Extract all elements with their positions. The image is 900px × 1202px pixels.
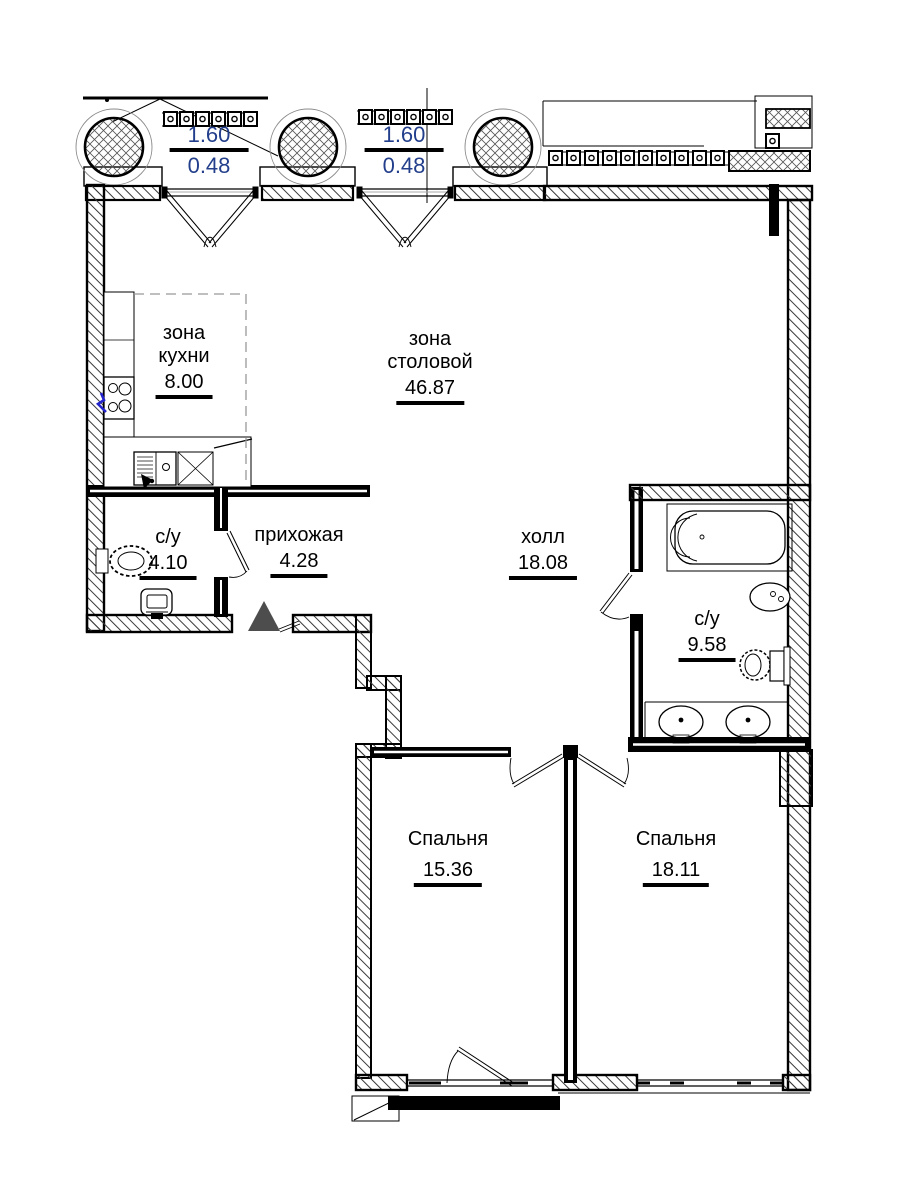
room-area: 4.28 (271, 550, 328, 578)
room-name: Спальня (408, 828, 488, 851)
door-bathroom-left (227, 531, 249, 577)
room-label-bathroom-left: с/у 4.10 (140, 526, 197, 580)
room-name: зона (387, 328, 472, 351)
room-area: 18.11 (643, 859, 710, 887)
double-sink-icon (645, 702, 788, 743)
room-label-kitchen-zone: зона кухни 8.00 (156, 322, 213, 399)
window-sill-value: 0.48 (170, 152, 249, 178)
room-name: прихожая (254, 524, 343, 547)
room-name: столовой (387, 351, 472, 374)
room-label-hallway: прихожая 4.28 (254, 524, 343, 578)
bedroom-1-window (407, 1080, 553, 1086)
window-1-dimensions: 1.60 0.48 (170, 122, 249, 178)
room-name: кухни (156, 345, 213, 368)
toilet-cistern-icon (740, 647, 790, 685)
door-bedroom-1 (510, 754, 564, 787)
floor-plan: 1.60 0.48 1.60 0.48 зона кухни 8.00 зона… (0, 0, 900, 1202)
room-label-bathroom-right: с/у 9.58 (679, 608, 736, 662)
room-label-bedroom-1: Спальня 15.36 (408, 828, 488, 887)
window-1 (162, 187, 258, 247)
room-area: 46.87 (396, 377, 464, 405)
room-area: 4.10 (140, 552, 197, 580)
room-area: 9.58 (679, 634, 736, 662)
room-name: холл (509, 526, 577, 549)
room-name: с/у (140, 526, 197, 549)
window-2 (357, 187, 453, 247)
room-area: 18.08 (509, 552, 577, 580)
room-name: зона (156, 322, 213, 345)
window-2-dimensions: 1.60 0.48 (365, 122, 444, 178)
facade-columns (76, 109, 547, 200)
balcony-parapet (352, 1096, 560, 1121)
room-label-dining-zone: зона столовой 46.87 (387, 328, 472, 405)
stove-icon (98, 377, 134, 419)
room-name: с/у (679, 608, 736, 631)
window-width-value: 1.60 (170, 122, 249, 152)
bathtub-icon (667, 504, 792, 571)
window-width-value: 1.60 (365, 122, 444, 152)
floor-plan-drawing (0, 0, 900, 1202)
column (453, 109, 547, 200)
room-label-hall: холл 18.08 (509, 526, 577, 580)
door-bathroom-right (600, 573, 632, 619)
room-area: 15.36 (414, 859, 482, 887)
room-area: 8.00 (156, 371, 213, 399)
room-label-bedroom-2: Спальня 18.11 (636, 828, 716, 887)
kitchen-sink-icon (134, 452, 176, 489)
room-name: Спальня (636, 828, 716, 851)
bidet-icon (750, 583, 790, 611)
door-bedroom-2 (577, 754, 628, 787)
toilet-icon (141, 589, 172, 619)
window-sill-value: 0.48 (365, 152, 444, 178)
